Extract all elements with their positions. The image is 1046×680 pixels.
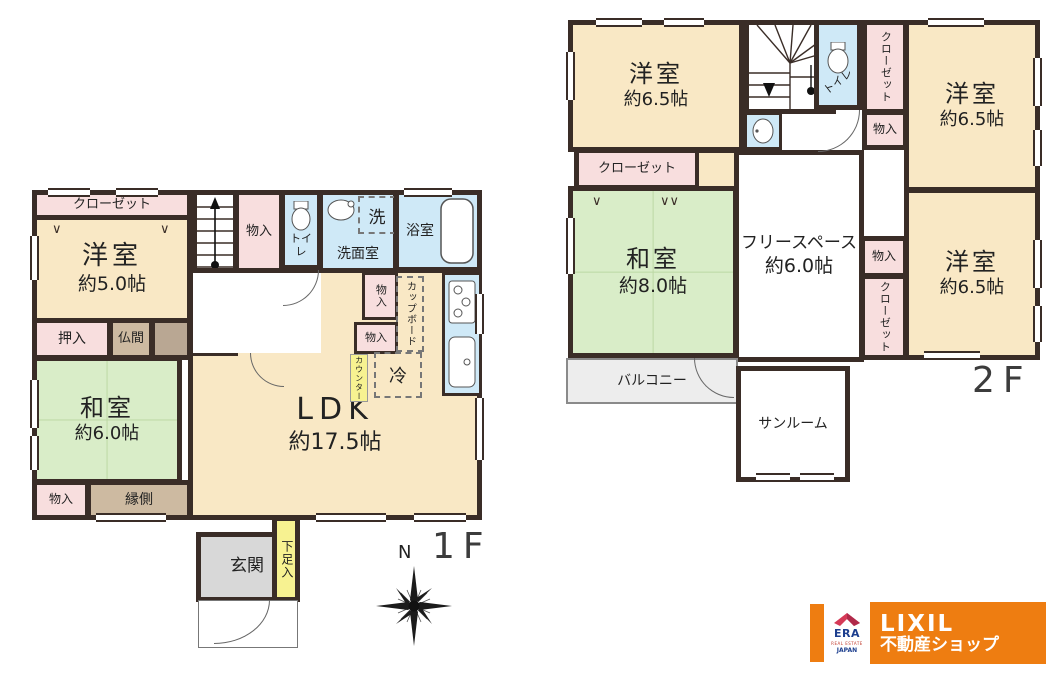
counter-label: カウンター xyxy=(354,356,363,401)
closet-label: クローゼット xyxy=(878,281,891,353)
storage-2f-e: 物入 xyxy=(860,236,908,278)
room-size: 約17.5帖 xyxy=(289,430,382,455)
washer-label: 洗 xyxy=(369,203,386,228)
room-name: 和室 xyxy=(626,246,680,274)
sink-icon xyxy=(326,198,360,222)
fridge-1f: 冷 xyxy=(374,352,422,398)
storage-label: 物入 xyxy=(49,493,73,507)
storage-label: 物入 xyxy=(365,332,387,345)
window-mark xyxy=(756,473,790,482)
window-mark xyxy=(924,351,980,360)
sunroom-label: サンルーム xyxy=(758,416,828,432)
room-name: 洋室 xyxy=(945,81,999,109)
room-size: 約6.0帖 xyxy=(765,256,833,278)
toilet-icon xyxy=(290,201,312,231)
japanese-room-2f: 和室 約8.0帖 xyxy=(568,186,738,358)
closet-2f-e: クローゼット xyxy=(860,274,908,360)
genkan-label: 玄関 xyxy=(230,557,264,577)
counter-1f: カウンター xyxy=(350,354,368,402)
era-roof-icon xyxy=(834,613,860,626)
window-mark xyxy=(1033,58,1042,106)
era-subtext: REAL ESTATE xyxy=(831,641,863,646)
storage-1f-sw: 物入 xyxy=(32,480,90,520)
bathtub-icon xyxy=(440,198,474,264)
room-size: 約5.0帖 xyxy=(78,274,146,296)
western-room-2f-nw: 洋室 約6.5帖 xyxy=(568,20,744,152)
lixil-subtext: 不動産ショップ xyxy=(880,636,1046,655)
room-size: 約6.5帖 xyxy=(624,90,689,111)
shoe-storage-1f: 下足入 xyxy=(272,516,300,602)
window-mark xyxy=(30,436,39,470)
door-arc xyxy=(818,110,860,152)
window-mark xyxy=(596,18,642,27)
room-name: 洋室 xyxy=(82,242,142,272)
floor-plan-page: クローゼット 洋室 約5.0帖 ∨ ∨ 物入 トイレ 洗面室 xyxy=(0,0,1046,680)
era-logo: ERA REAL ESTATE JAPAN xyxy=(827,604,867,662)
cupboard-label: カップボード xyxy=(403,281,418,347)
balcony-label: バルコニー xyxy=(617,373,687,389)
window-mark xyxy=(566,52,575,100)
window-mark xyxy=(404,188,452,197)
era-country: JAPAN xyxy=(837,647,857,654)
window-mark xyxy=(566,218,575,274)
bathroom-label: 浴室 xyxy=(406,223,434,239)
window-mark xyxy=(475,398,484,460)
fridge-label: 冷 xyxy=(389,362,407,388)
lixil-wordmark: LIXIL xyxy=(880,612,1046,636)
storage-1f-k1: 物入 xyxy=(362,272,398,320)
closet-pole-mark: ∨ xyxy=(160,222,170,237)
oshiire-label: 押入 xyxy=(58,331,86,347)
washroom-label: 洗面室 xyxy=(337,246,379,262)
western-room-2f-se: 洋室 約6.5帖 xyxy=(904,188,1040,360)
closet-pole-mark: ∨∨ xyxy=(660,194,679,209)
closet-2f-w: クローゼット xyxy=(574,148,700,190)
closet-2f-ne: クローゼット xyxy=(862,20,908,114)
window-mark xyxy=(30,380,39,428)
room-size: 約6.0帖 xyxy=(75,424,140,445)
stove-icon xyxy=(448,280,476,324)
toilet-label: トイレ xyxy=(285,233,317,258)
era-wordmark: ERA xyxy=(834,627,860,640)
closet-label: クローゼット xyxy=(879,31,892,103)
free-space-2f: フリースペース 約6.0帖 xyxy=(734,150,864,362)
window-mark xyxy=(316,513,386,522)
storage-nook-1f xyxy=(150,318,192,360)
room-size: 約8.0帖 xyxy=(619,276,687,298)
room-name: 洋室 xyxy=(629,61,683,89)
washbasin-2f xyxy=(744,112,782,150)
window-mark xyxy=(1033,130,1042,166)
storage-2f-ne: 物入 xyxy=(862,110,908,150)
lixil-logo: LIXIL 不動産ショップ xyxy=(870,602,1046,664)
sink-icon xyxy=(751,118,775,144)
room-name: フリースペース xyxy=(741,234,857,254)
western-room-2f-ne: 洋室 約6.5帖 xyxy=(904,20,1040,192)
shoe-storage-label: 下足入 xyxy=(279,540,293,579)
stairs-icon xyxy=(197,195,233,277)
storage-1f-stairs: 物入 xyxy=(234,190,284,274)
window-mark xyxy=(48,188,90,197)
storage-label: 物入 xyxy=(872,250,896,264)
window-mark xyxy=(116,188,158,197)
floor2-label: 2F xyxy=(972,360,1032,401)
closet-label: クローゼット xyxy=(73,198,151,213)
window-mark xyxy=(928,18,984,27)
window-mark xyxy=(96,513,166,522)
compass-north-label: N xyxy=(398,542,411,563)
room-size: 約6.5帖 xyxy=(940,278,1005,299)
storage-label: 物入 xyxy=(246,225,272,240)
toilet-2f: トイレ xyxy=(814,20,862,110)
compass-icon xyxy=(374,564,454,648)
window-mark xyxy=(664,18,704,27)
japanese-room-1f: 和室 約6.0帖 xyxy=(32,356,182,484)
window-mark xyxy=(1033,306,1042,342)
room-name: 和室 xyxy=(80,395,134,423)
window-mark xyxy=(414,513,466,522)
washer-1f: 洗 xyxy=(358,196,396,234)
logo-accent-bar xyxy=(810,604,824,662)
toilet-1f: トイレ xyxy=(280,190,322,270)
kitchen-sink-icon xyxy=(448,336,476,388)
butsuma-1f: 仏間 xyxy=(108,318,154,360)
oshiire-1f: 押入 xyxy=(32,318,112,360)
window-mark xyxy=(1033,240,1042,288)
window-mark xyxy=(475,294,484,334)
sunroom-2f: サンルーム xyxy=(736,366,850,482)
closet-label: クローゼット xyxy=(598,162,676,177)
storage-label: 物入 xyxy=(873,123,897,137)
floor1-label: 1F xyxy=(432,526,492,567)
closet-pole-mark: ∨ xyxy=(52,222,62,237)
room-name: 洋室 xyxy=(945,249,999,277)
butsuma-label: 仏間 xyxy=(118,332,144,347)
storage-1f-k2: 物入 xyxy=(354,322,398,354)
window-mark xyxy=(800,473,834,482)
cupboard-1f: カップボード xyxy=(396,276,424,352)
window-mark xyxy=(30,236,39,280)
closet-pole-mark: ∨ xyxy=(592,194,602,209)
storage-label: 物入 xyxy=(374,284,387,308)
room-size: 約6.5帖 xyxy=(940,110,1005,131)
engawa-label: 縁側 xyxy=(125,492,153,508)
